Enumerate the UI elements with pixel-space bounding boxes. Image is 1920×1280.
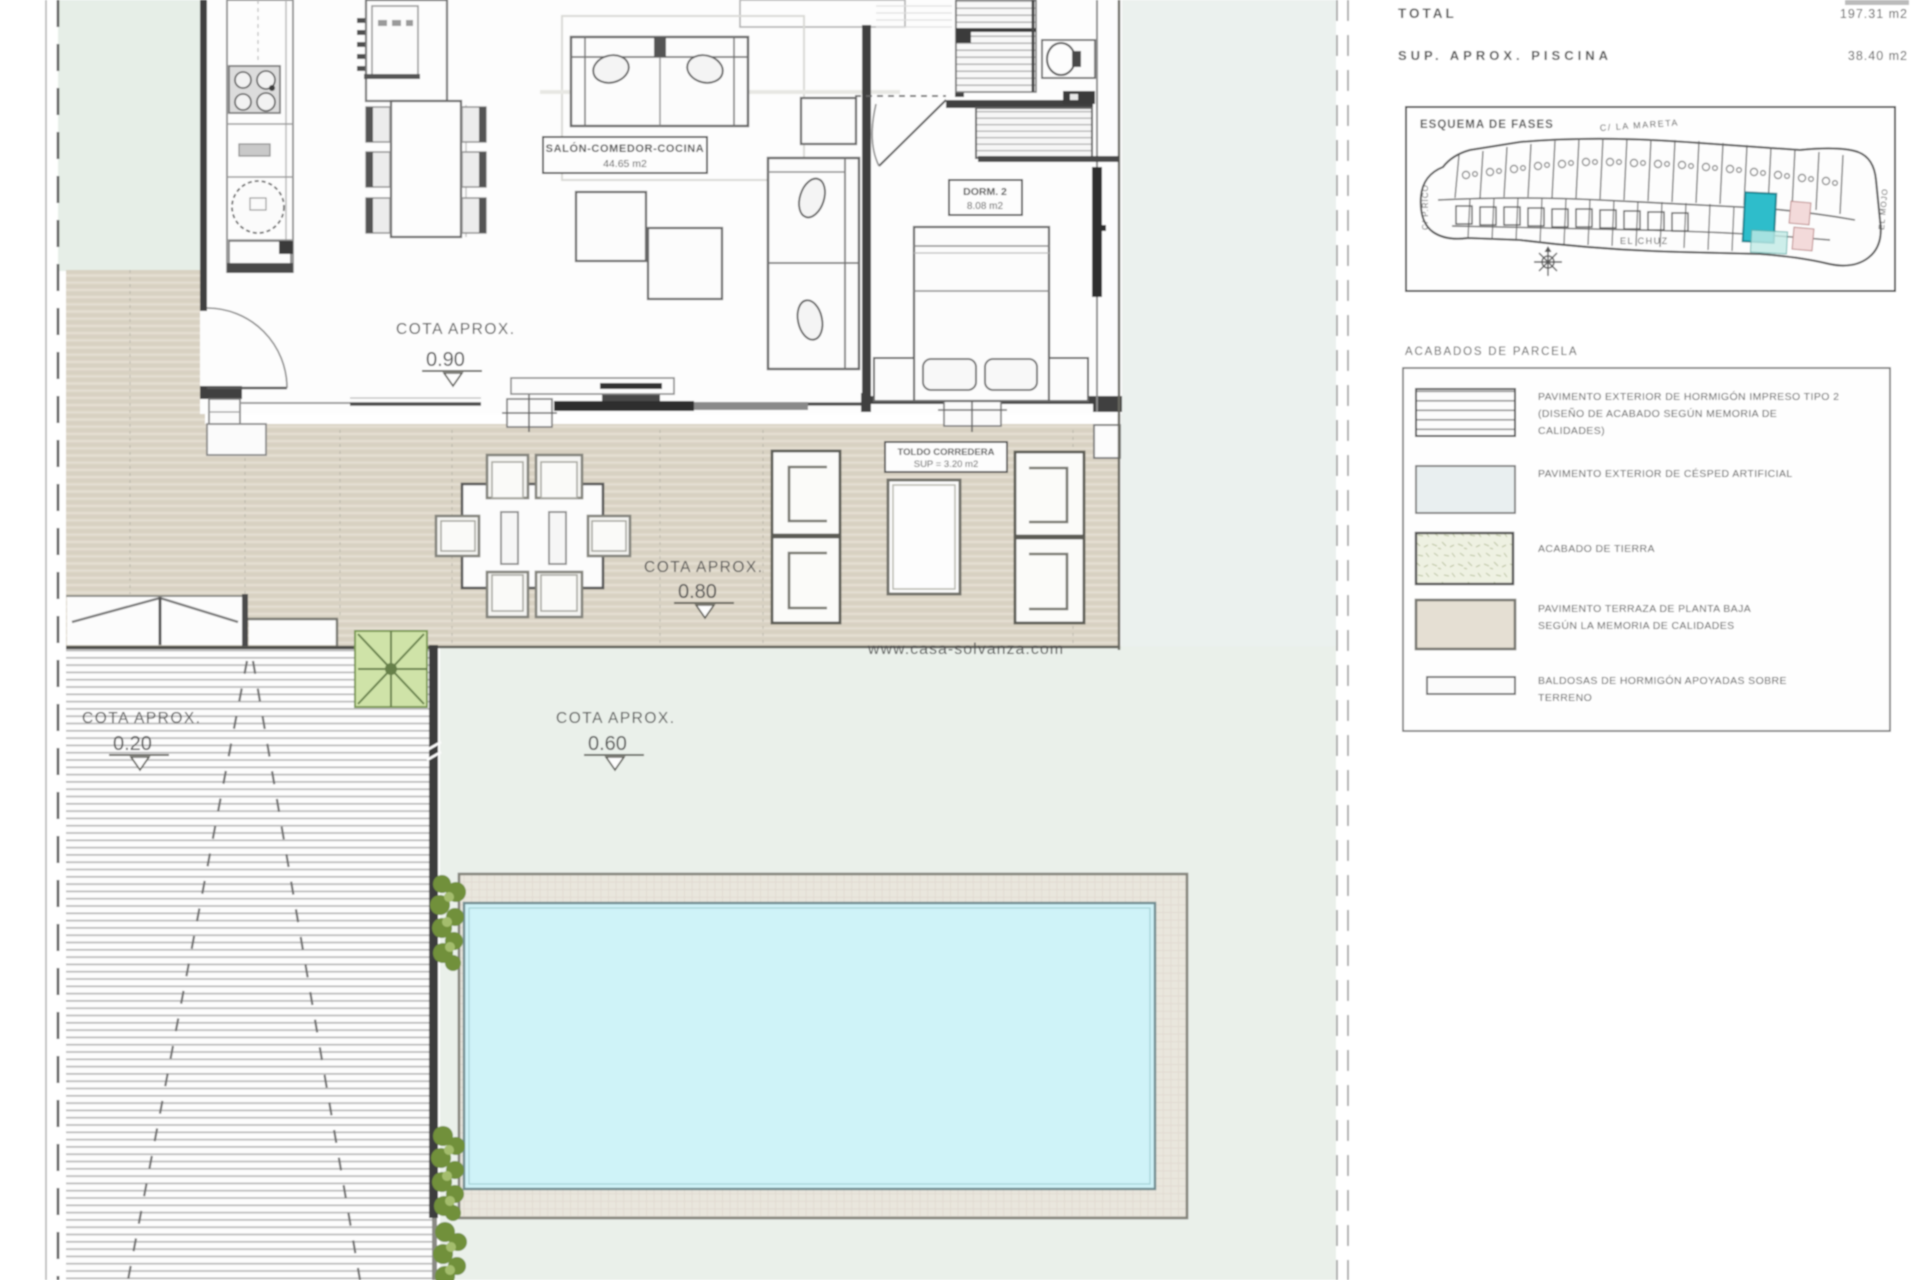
- svg-text:CALIDADES): CALIDADES): [1538, 425, 1605, 437]
- svg-text:EL CHUZ: EL CHUZ: [1620, 236, 1669, 246]
- svg-text:0.20: 0.20: [113, 733, 152, 755]
- svg-text:8.08 m2: 8.08 m2: [967, 201, 1004, 212]
- svg-text:SUP. APROX. PISCINA: SUP. APROX. PISCINA: [1398, 48, 1612, 63]
- svg-text:SEGÚN LA MEMORIA DE CALIDADES: SEGÚN LA MEMORIA DE CALIDADES: [1538, 619, 1735, 632]
- svg-text:ACABADO DE TIERRA: ACABADO DE TIERRA: [1538, 543, 1655, 555]
- svg-text:44.65 m2: 44.65 m2: [603, 158, 647, 170]
- svg-text:BALDOSAS DE HORMIGÓN APOYADAS: BALDOSAS DE HORMIGÓN APOYADAS SOBRE: [1538, 674, 1787, 687]
- svg-text:ACABADOS DE PARCELA: ACABADOS DE PARCELA: [1405, 346, 1578, 358]
- svg-text:(DISEÑO DE ACABADO SEGÚN MEMOR: (DISEÑO DE ACABADO SEGÚN MEMORIA DE: [1538, 407, 1777, 420]
- svg-text:COTA APROX.: COTA APROX.: [556, 710, 676, 727]
- svg-text:PAVIMENTO EXTERIOR DE CÉSPED A: PAVIMENTO EXTERIOR DE CÉSPED ARTIFICIAL: [1538, 467, 1793, 480]
- svg-text:TERRENO: TERRENO: [1538, 692, 1592, 704]
- svg-text:DORM. 2: DORM. 2: [963, 186, 1007, 198]
- svg-text:197.31 m2: 197.31 m2: [1840, 7, 1908, 21]
- svg-text:C/ P.RICO: C/ P.RICO: [1421, 184, 1430, 230]
- svg-text:38.40 m2: 38.40 m2: [1848, 49, 1908, 63]
- svg-text:0.90: 0.90: [426, 349, 465, 371]
- svg-text:TOLDO CORREDERA: TOLDO CORREDERA: [898, 447, 995, 458]
- svg-text:PAVIMENTO TERRAZA DE PLANTA BA: PAVIMENTO TERRAZA DE PLANTA BAJA: [1538, 603, 1751, 615]
- svg-text:ESQUEMA DE FASES: ESQUEMA DE FASES: [1420, 119, 1554, 131]
- svg-text:COTA APROX.: COTA APROX.: [644, 559, 764, 576]
- svg-text:COTA APROX.: COTA APROX.: [82, 710, 202, 727]
- svg-text:COTA APROX.: COTA APROX.: [396, 321, 516, 338]
- svg-text:PAVIMENTO EXTERIOR DE HORMIGÓN: PAVIMENTO EXTERIOR DE HORMIGÓN IMPRESO T…: [1538, 390, 1839, 403]
- svg-text:TOTAL: TOTAL: [1398, 6, 1457, 21]
- svg-text:SUP = 3.20 m2: SUP = 3.20 m2: [914, 459, 979, 470]
- svg-text:www.casa-solvanza.com: www.casa-solvanza.com: [867, 641, 1064, 658]
- svg-text:SALÓN-COMEDOR-COCINA: SALÓN-COMEDOR-COCINA: [546, 142, 705, 155]
- svg-text:0.60: 0.60: [588, 733, 627, 755]
- svg-text:0.80: 0.80: [678, 581, 717, 603]
